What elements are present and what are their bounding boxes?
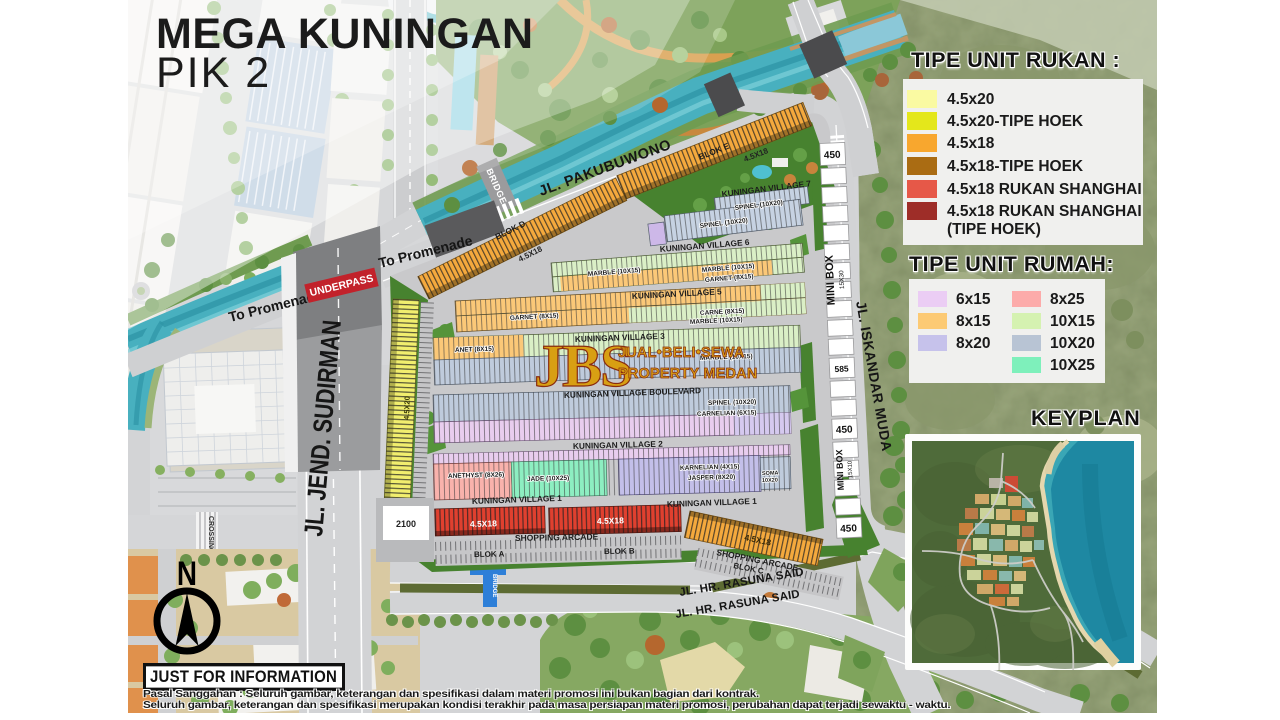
svg-text:SPINEL (10X20): SPINEL (10X20) (708, 399, 756, 407)
svg-text:JADE (10X25): JADE (10X25) (527, 475, 569, 483)
svg-text:450: 450 (836, 424, 854, 436)
svg-text:15X10: 15X10 (848, 460, 855, 478)
svg-text:4.5X20: 4.5X20 (402, 396, 412, 420)
svg-text:4.5X18: 4.5X18 (597, 515, 624, 526)
svg-text:15X30: 15X30 (838, 270, 846, 289)
svg-text:2100: 2100 (396, 519, 416, 529)
svg-text:585: 585 (834, 363, 849, 374)
svg-text:ANETHYST (8X26): ANETHYST (8X26) (448, 472, 505, 480)
svg-text:SOMA: SOMA (762, 471, 779, 477)
svg-text:BRIDGE: BRIDGE (491, 574, 497, 597)
svg-text:450: 450 (824, 150, 842, 162)
svg-text:JASPER (8X20): JASPER (8X20) (688, 474, 735, 482)
svg-text:JUAL•BELI•SEWA: JUAL•BELI•SEWA (618, 345, 745, 361)
svg-text:BLOK B: BLOK B (604, 546, 635, 556)
svg-text:4.5X18: 4.5X18 (470, 518, 497, 529)
svg-text:PROPERTY MEDAN: PROPERTY MEDAN (618, 366, 758, 382)
svg-text:SHOPPING ARCADE: SHOPPING ARCADE (515, 532, 599, 543)
svg-text:JBS: JBS (534, 333, 631, 399)
svg-text:N: N (177, 554, 197, 592)
svg-text:ANET (8X15): ANET (8X15) (455, 346, 494, 354)
svg-text:10X20: 10X20 (762, 478, 778, 484)
svg-text:BLOK A: BLOK A (474, 549, 505, 559)
svg-text:MINI BOX: MINI BOX (834, 449, 846, 490)
svg-text:MINI BOX: MINI BOX (824, 254, 838, 305)
svg-text:450: 450 (840, 523, 858, 535)
